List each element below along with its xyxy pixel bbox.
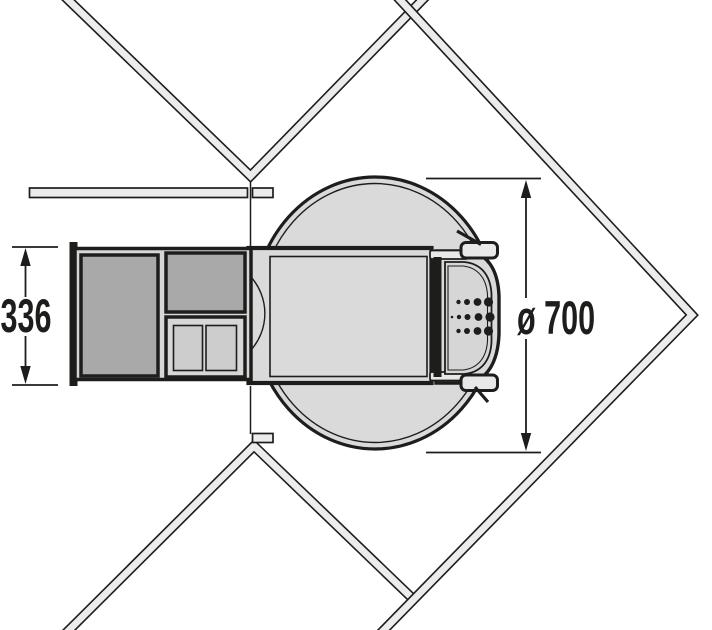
plan-drawing-canvas: 336 ø 700 [0, 0, 712, 630]
swing-door-unit [430, 231, 499, 402]
dimension-depth: 336 [1, 247, 58, 385]
door-hinge-bar [434, 257, 442, 377]
wall-band-lower-left [55, 446, 411, 630]
front-panel [249, 248, 432, 383]
wall-stub-bottom [253, 434, 274, 443]
compartment-left [174, 326, 203, 371]
dimension-arrow-up-icon [20, 248, 30, 266]
dimension-depth-label: 336 [1, 290, 52, 342]
dimension-arrow-down-icon [521, 433, 531, 451]
dimension-arrow-down-icon [20, 366, 30, 384]
countertop-edge-left [30, 188, 248, 198]
dimension-arrow-up-icon [521, 180, 531, 198]
dimension-diameter-label: ø 700 [517, 292, 595, 344]
compartment-right [206, 326, 237, 371]
pullout-tray [70, 242, 252, 386]
hinge-bracket-bottom [461, 375, 498, 391]
wall-stub-top [253, 188, 274, 198]
waste-bin-large [81, 255, 158, 376]
wall-band-upper-left [60, 0, 434, 176]
waste-bin-small [166, 253, 245, 312]
corner-carousel-plan-drawing: 336 ø 700 [0, 0, 712, 630]
front-panel-inner [270, 257, 427, 377]
